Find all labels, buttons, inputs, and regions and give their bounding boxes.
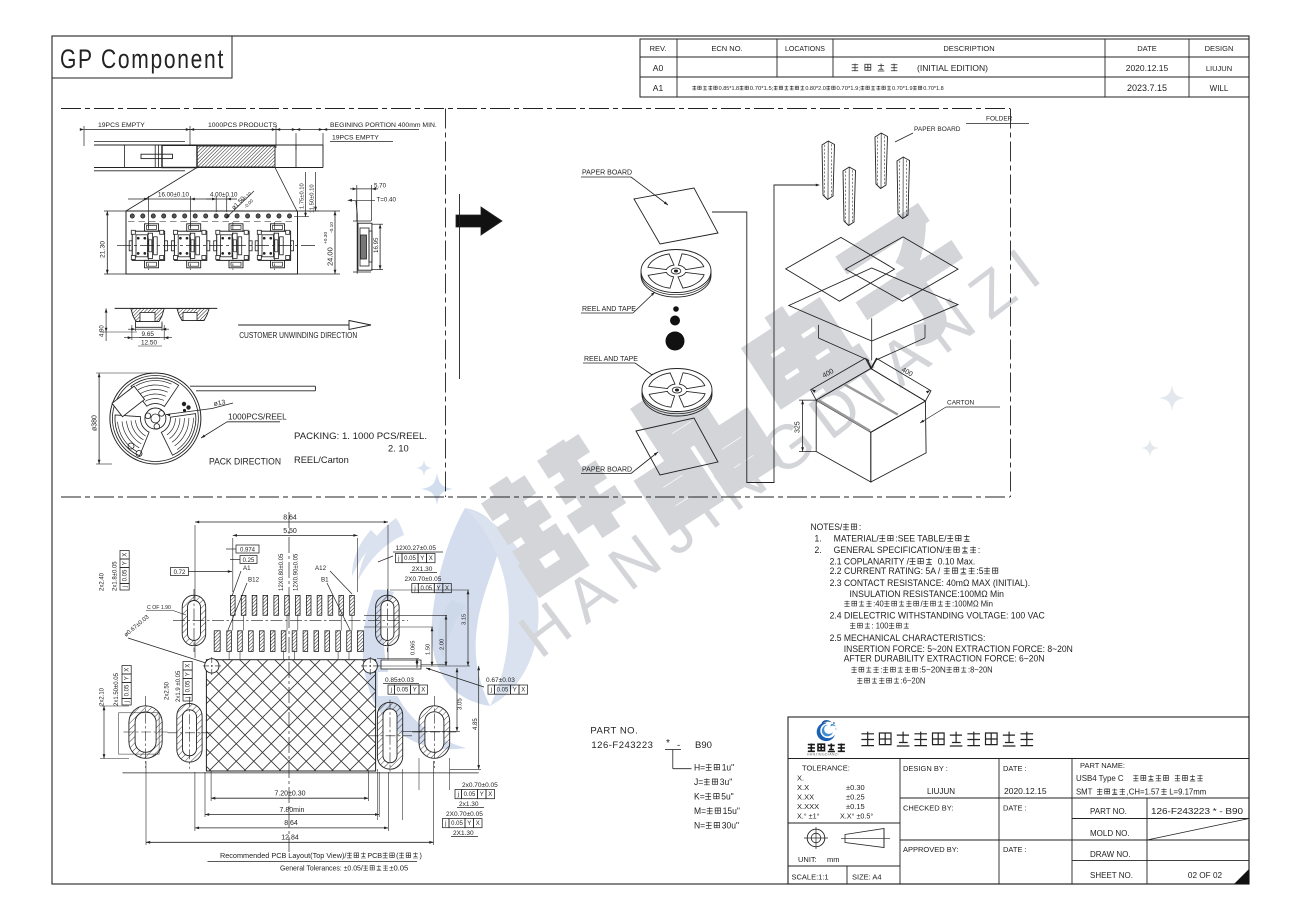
svg-text:0.065: 0.065: [411, 640, 417, 655]
svg-text:02 OF 02: 02 OF 02: [1188, 871, 1223, 880]
svg-text:LIUJUN: LIUJUN: [927, 787, 955, 796]
svg-text:Y: Y: [413, 688, 417, 694]
svg-text:j: j: [397, 556, 399, 562]
svg-text:X: X: [521, 688, 525, 694]
svg-text:0.67±0.03: 0.67±0.03: [486, 677, 515, 684]
svg-text:2020.12.15: 2020.12.15: [1004, 786, 1047, 796]
svg-text:j: j: [125, 701, 131, 703]
svg-text:GENERAL SPECIFICATION/: GENERAL SPECIFICATION/: [834, 545, 946, 555]
svg-text:CARTON: CARTON: [947, 400, 975, 407]
svg-text::SEE TABLE/: :SEE TABLE/: [895, 534, 947, 544]
svg-text:PART NAME:: PART NAME:: [1080, 761, 1125, 770]
svg-text:3u": 3u": [720, 777, 733, 787]
svg-text:0.05: 0.05: [123, 569, 129, 581]
svg-text:2x1.50±0.05: 2x1.50±0.05: [114, 672, 120, 706]
svg-text:j: j: [123, 586, 129, 588]
svg-text:0.70*1.9: 0.70*1.9: [892, 86, 913, 92]
svg-text:ECN NO.: ECN NO.: [711, 44, 742, 53]
svg-text:0.05: 0.05: [125, 684, 131, 696]
svg-text:DRAW NO.: DRAW NO.: [1090, 850, 1131, 859]
svg-text:j: j: [390, 688, 392, 694]
svg-text:2x2.50: 2x2.50: [165, 681, 171, 700]
svg-text:±0.30: ±0.30: [846, 783, 865, 792]
svg-text:PACK DIRECTION: PACK DIRECTION: [209, 457, 281, 467]
svg-text:1u": 1u": [722, 763, 735, 773]
svg-text:B90: B90: [695, 740, 712, 751]
svg-text:0.85±0.03: 0.85±0.03: [385, 677, 414, 684]
svg-text:j: j: [457, 792, 459, 798]
svg-text:0.80*2.0: 0.80*2.0: [805, 86, 826, 92]
svg-text:12.84: 12.84: [281, 835, 299, 842]
svg-text:B12: B12: [248, 577, 260, 584]
svg-text:12X0.27±0.05: 12X0.27±0.05: [396, 545, 437, 552]
svg-text:Y: Y: [437, 586, 441, 592]
svg-text::5: :5: [976, 566, 983, 576]
svg-text:X: X: [421, 688, 425, 694]
svg-text:: 100: : 100: [872, 622, 889, 631]
svg-text:ø380: ø380: [92, 415, 99, 431]
svg-text:+0.30: +0.30: [323, 232, 329, 244]
svg-text:2X0.70±0.05: 2X0.70±0.05: [446, 811, 483, 818]
svg-text:4.85: 4.85: [473, 718, 479, 730]
svg-text:4.90: 4.90: [100, 325, 106, 337]
svg-text:USB4 Type C: USB4 Type C: [1076, 774, 1124, 783]
svg-text:2.3 CONTACT RESISTANCE: 40mΩ M: 2.3 CONTACT RESISTANCE: 40mΩ MAX (INITIA…: [830, 578, 1031, 588]
svg-text:0.25: 0.25: [243, 558, 255, 564]
svg-text:126-F243223 * - B90: 126-F243223 * - B90: [1151, 807, 1244, 816]
svg-text:WILL: WILL: [1210, 84, 1229, 93]
svg-text:0.85*1.8: 0.85*1.8: [719, 86, 740, 92]
svg-text:L=9.17mm: L=9.17mm: [1169, 788, 1206, 797]
svg-text:GP Component: GP Component: [60, 44, 225, 74]
svg-text:Y: Y: [125, 676, 131, 680]
svg-text:±0.25: ±0.25: [846, 793, 865, 802]
svg-text:X: X: [488, 792, 492, 798]
svg-text:7.20±0.30: 7.20±0.30: [274, 791, 305, 798]
svg-text:,CH=1.57: ,CH=1.57: [1127, 788, 1161, 797]
svg-text::8~20N: :8~20N: [968, 666, 993, 675]
svg-text:12.50: 12.50: [141, 340, 157, 347]
svg-text::: :: [880, 666, 882, 675]
svg-text:j: j: [444, 821, 446, 827]
svg-text:PAPER BOARD: PAPER BOARD: [914, 126, 961, 133]
svg-text:1000PCS/REEL: 1000PCS/REEL: [228, 413, 287, 422]
svg-text:2. 10: 2. 10: [388, 444, 409, 454]
svg-text:4.00±0.10: 4.00±0.10: [210, 192, 238, 199]
svg-text:0.05: 0.05: [186, 680, 192, 692]
svg-text:2x1.8±0.05: 2x1.8±0.05: [113, 561, 119, 591]
svg-text::100MΩ Min: :100MΩ Min: [952, 600, 993, 609]
svg-text:NOTES/: NOTES/: [811, 522, 843, 532]
svg-text:M=: M=: [694, 806, 706, 816]
svg-text:0.974: 0.974: [240, 548, 256, 554]
svg-text::40: :40: [873, 600, 884, 609]
svg-text:0.05: 0.05: [397, 688, 409, 694]
svg-text:±0.05: ±0.05: [389, 864, 408, 873]
svg-text:HANJINGDIANZI: HANJINGDIANZI: [807, 753, 839, 757]
svg-text:0.10 Max.: 0.10 Max.: [938, 557, 976, 567]
svg-text:General Tolerances: ±0.05/: General Tolerances: ±0.05/: [280, 864, 363, 873]
svg-text::5~20N: :5~20N: [919, 666, 946, 675]
svg-text:CHECKED BY:: CHECKED BY:: [903, 804, 953, 813]
svg-text:MOLD NO.: MOLD NO.: [1090, 829, 1130, 838]
svg-text:INSULATION RESISTANCE:100MΩ Mi: INSULATION RESISTANCE:100MΩ Min: [850, 589, 1004, 599]
svg-text:X: X: [125, 668, 131, 672]
svg-text:8.64: 8.64: [284, 820, 298, 827]
svg-text:UNIT:: UNIT:: [798, 855, 817, 864]
svg-text:12X0.80±0.05: 12X0.80±0.05: [279, 553, 285, 591]
svg-text::: :: [978, 545, 980, 555]
svg-text:2020.12.15: 2020.12.15: [1126, 63, 1169, 73]
svg-text:K=: K=: [694, 792, 705, 802]
svg-text:REEL AND TAPE: REEL AND TAPE: [582, 306, 636, 313]
svg-text:325: 325: [795, 421, 802, 433]
svg-text:SHEET NO.: SHEET NO.: [1090, 871, 1133, 880]
svg-text:REEL/Carton: REEL/Carton: [294, 455, 349, 465]
svg-text:5.50: 5.50: [283, 528, 297, 535]
svg-text:1.75±0.10: 1.75±0.10: [300, 183, 306, 209]
svg-text:0.05: 0.05: [497, 688, 509, 694]
svg-text:Y: Y: [467, 821, 471, 827]
svg-text:1.50: 1.50: [426, 644, 432, 655]
svg-text:REEL AND TAPE: REEL AND TAPE: [584, 356, 638, 363]
svg-text:X: X: [476, 821, 480, 827]
svg-text:19PCS EMPTY: 19PCS EMPTY: [332, 135, 379, 142]
svg-text:30u": 30u": [722, 821, 739, 831]
svg-text:PART NO.: PART NO.: [590, 726, 638, 737]
svg-text:X.° ±1°: X.° ±1°: [797, 812, 820, 821]
svg-text:DESIGN: DESIGN: [1205, 44, 1234, 53]
svg-text:DATE: DATE: [1137, 44, 1156, 53]
svg-text:REV.: REV.: [650, 44, 667, 53]
svg-text:BEGINING PORTION 400mm MIN.: BEGINING PORTION 400mm MIN.: [330, 122, 437, 129]
svg-text:J=: J=: [694, 777, 703, 787]
svg-text:±0.15: ±0.15: [846, 802, 865, 811]
svg-text:X.XXX: X.XXX: [797, 802, 819, 811]
svg-text:TOLERANCE:: TOLERANCE:: [802, 764, 850, 773]
svg-text:AFTER DURABILITY EXTRACTION FO: AFTER DURABILITY EXTRACTION FORCE: 6~20N: [844, 654, 1045, 664]
svg-text:5u": 5u": [721, 792, 734, 802]
svg-text:2.: 2.: [815, 545, 822, 555]
svg-text:j: j: [490, 688, 492, 694]
svg-text:Recommended PCB Layout(Top Vie: Recommended PCB Layout(Top View)/: [220, 851, 347, 860]
svg-text:16.95: 16.95: [373, 237, 380, 253]
svg-text:X: X: [429, 556, 433, 562]
svg-text:DATE :: DATE :: [1003, 764, 1027, 773]
svg-text:LIUJUN: LIUJUN: [1206, 64, 1232, 73]
svg-text:2x0.70±0.05: 2x0.70±0.05: [462, 782, 498, 789]
svg-text:0.70*1.5;: 0.70*1.5;: [750, 86, 774, 92]
svg-text:9.65: 9.65: [142, 331, 155, 338]
svg-text:PAPER BOARD: PAPER BOARD: [582, 170, 632, 177]
svg-text:0.72: 0.72: [174, 570, 186, 576]
svg-text::: :: [859, 522, 861, 532]
svg-text:PACKING: 1. 1000 PCS/REEL.: PACKING: 1. 1000 PCS/REEL.: [294, 431, 427, 441]
svg-text::6~20N: :6~20N: [901, 677, 926, 686]
svg-text:5.70: 5.70: [374, 183, 387, 190]
svg-text:19PCS EMPTY: 19PCS EMPTY: [98, 122, 145, 129]
svg-text:0.05: 0.05: [464, 792, 476, 798]
svg-text:2.4 DIELECTRIC WITHSTANDING VO: 2.4 DIELECTRIC WITHSTANDING VOLTAGE: 100…: [830, 611, 1046, 621]
svg-text:2.1 COPLANARITY /: 2.1 COPLANARITY /: [830, 557, 910, 567]
svg-text:Y: Y: [186, 672, 192, 676]
svg-text:N=: N=: [694, 821, 705, 831]
svg-text:B1: B1: [321, 577, 329, 584]
svg-text:1.: 1.: [815, 534, 822, 544]
svg-text:2x2.10: 2x2.10: [100, 687, 106, 706]
svg-text:2023.7.15: 2023.7.15: [1127, 83, 1167, 93]
svg-text:DESCRIPTION: DESCRIPTION: [943, 44, 994, 53]
svg-text:2.5 MECHANICAL CHARACTERISTICS: 2.5 MECHANICAL CHARACTERISTICS:: [830, 633, 986, 643]
svg-text:0.05: 0.05: [404, 556, 416, 562]
svg-text:2X1.30: 2X1.30: [412, 566, 433, 573]
svg-text:DESIGN BY :: DESIGN BY :: [903, 764, 948, 773]
svg-text:SIZE: A4: SIZE: A4: [852, 873, 882, 882]
svg-text:2x2.40: 2x2.40: [100, 572, 106, 591]
svg-text:12X0.90±0.05: 12X0.90±0.05: [294, 553, 300, 591]
svg-text:X.XX: X.XX: [797, 793, 814, 802]
svg-text:3.15: 3.15: [462, 614, 468, 625]
svg-text:MATERIAL/: MATERIAL/: [834, 534, 880, 544]
svg-text:DATE :: DATE :: [1003, 804, 1027, 813]
svg-text:0.70*1.9;: 0.70*1.9;: [837, 86, 861, 92]
svg-text:PAPER BOARD: PAPER BOARD: [582, 467, 632, 474]
svg-text:2x1.9 ±0.05: 2x1.9 ±0.05: [176, 670, 182, 702]
svg-text:T=0.40: T=0.40: [377, 197, 397, 204]
svg-text:X.: X.: [797, 774, 804, 783]
svg-text:FOLDER: FOLDER: [986, 116, 1013, 123]
svg-text:(INITIAL EDITION): (INITIAL EDITION): [917, 63, 988, 73]
svg-text:INSERTION FORCE: 5~20N EXTRACT: INSERTION FORCE: 5~20N EXTRACTION FORCE:…: [844, 644, 1073, 654]
svg-text:Y: Y: [420, 556, 424, 562]
svg-text:A0: A0: [653, 63, 664, 73]
svg-text:X.X° ±0.5°: X.X° ±0.5°: [840, 812, 873, 821]
svg-text:LOCATIONS: LOCATIONS: [785, 46, 825, 53]
svg-text:1000PCS PRODUCTS: 1000PCS PRODUCTS: [208, 122, 278, 129]
svg-text:2X1.30: 2X1.30: [453, 830, 474, 837]
svg-text:X: X: [445, 586, 449, 592]
svg-text:2.00: 2.00: [440, 639, 446, 650]
svg-text:2X0.70±0.05: 2X0.70±0.05: [405, 576, 442, 583]
svg-text:0.05: 0.05: [451, 821, 463, 827]
svg-text:16.00±0.10: 16.00±0.10: [158, 192, 189, 199]
svg-text:21.30: 21.30: [100, 241, 107, 258]
svg-text:SCALE:1:1: SCALE:1:1: [792, 873, 829, 882]
svg-text:C OF 1.90: C OF 1.90: [147, 605, 171, 611]
svg-text:126-F243223: 126-F243223: [591, 740, 653, 751]
svg-text:*: *: [666, 738, 670, 749]
svg-text:X: X: [123, 553, 129, 557]
svg-text:CUSTOMER UNWINDING DIRECTION: CUSTOMER UNWINDING DIRECTION: [239, 330, 357, 340]
svg-text:j: j: [413, 586, 415, 592]
svg-text:24.00: 24.00: [326, 247, 335, 266]
svg-text:15u": 15u": [723, 806, 740, 816]
svg-text:Y: Y: [123, 561, 129, 565]
svg-text:X: X: [186, 664, 192, 668]
svg-text:A1: A1: [243, 565, 251, 572]
svg-text:11.50±0.10: 11.50±0.10: [310, 184, 316, 213]
svg-text:0.70*1.8: 0.70*1.8: [923, 86, 944, 92]
svg-text:Y: Y: [513, 688, 517, 694]
svg-text:X.X: X.X: [797, 783, 809, 792]
svg-text:Y: Y: [480, 792, 484, 798]
svg-text:A1: A1: [653, 83, 664, 93]
svg-text:8.64: 8.64: [283, 515, 297, 522]
svg-text:mm: mm: [827, 855, 840, 864]
svg-text:3.05: 3.05: [458, 698, 464, 710]
svg-text:7.80min: 7.80min: [280, 807, 305, 814]
svg-text:PART NO.: PART NO.: [1090, 807, 1127, 816]
svg-text:H=: H=: [694, 763, 705, 773]
svg-text:2x1.30: 2x1.30: [459, 801, 479, 808]
svg-text:PCB: PCB: [367, 851, 382, 860]
svg-text:DATE :: DATE :: [1003, 845, 1027, 854]
svg-text:0.05: 0.05: [420, 586, 432, 592]
svg-text:APPROVED BY:: APPROVED BY:: [903, 845, 958, 854]
svg-text:2.2 CURRENT RATING: 5A /: 2.2 CURRENT RATING: 5A /: [830, 566, 941, 576]
svg-text:j: j: [186, 697, 192, 699]
svg-text:-0.10: -0.10: [329, 222, 335, 233]
svg-text:A12: A12: [315, 565, 327, 572]
svg-text:SMT: SMT: [1076, 788, 1092, 797]
